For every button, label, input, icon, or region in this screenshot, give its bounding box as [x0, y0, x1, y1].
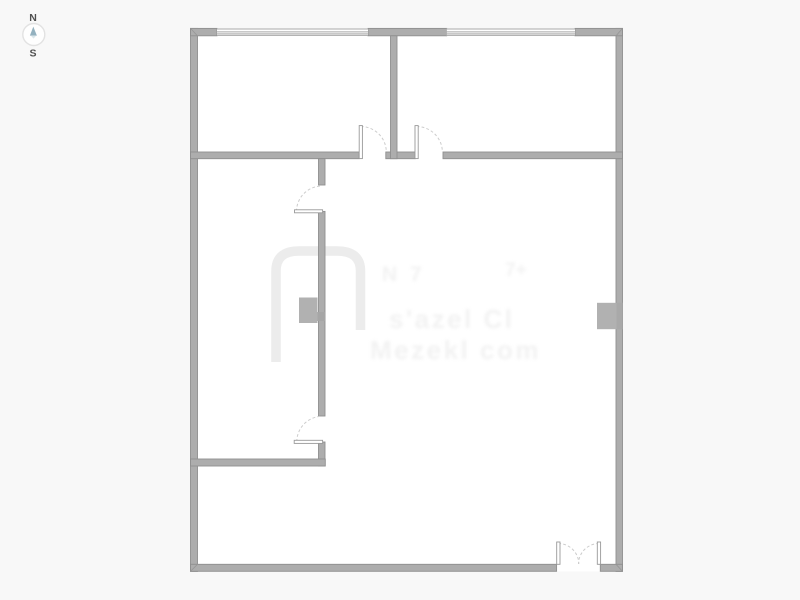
svg-text:N 7: N 7: [382, 263, 425, 286]
svg-text:Mezekl com: Mezekl com: [370, 335, 541, 365]
svg-text:S: S: [29, 47, 36, 59]
svg-text:N: N: [29, 12, 37, 24]
svg-text:s'azel Cl: s'azel Cl: [389, 304, 515, 334]
svg-text:7+: 7+: [505, 260, 527, 281]
